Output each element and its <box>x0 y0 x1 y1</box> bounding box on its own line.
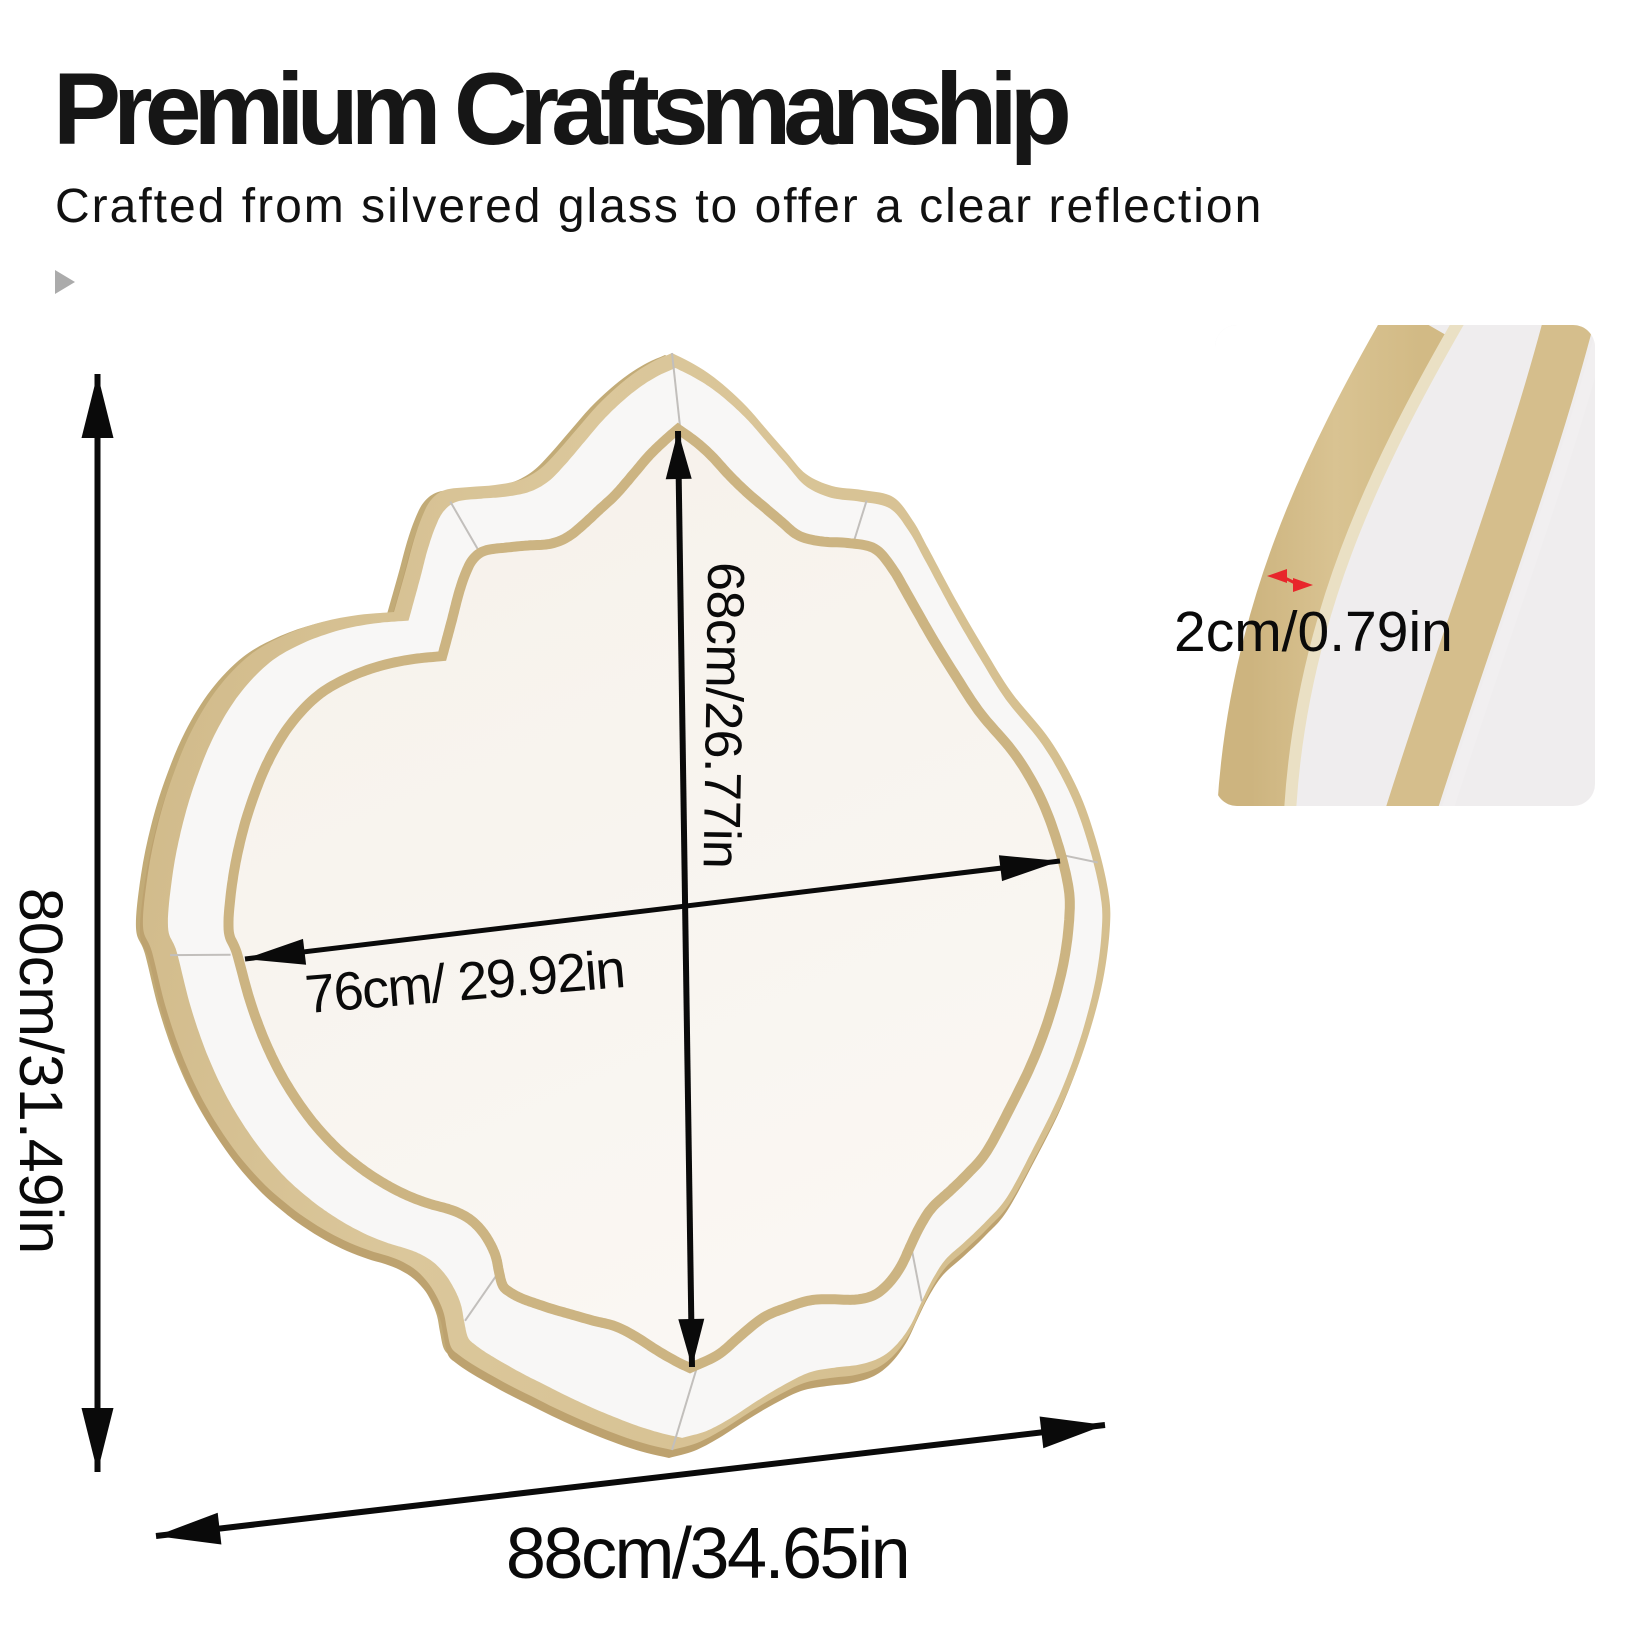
svg-text:88cm/34.65in: 88cm/34.65in <box>506 1514 908 1594</box>
svg-text:Premium Craftsmanship: Premium Craftsmanship <box>53 52 1069 166</box>
svg-text:80cm/31.49in: 80cm/31.49in <box>7 888 75 1254</box>
svg-text:68cm/26.77in: 68cm/26.77in <box>692 562 755 869</box>
svg-text:2cm/0.79in: 2cm/0.79in <box>1174 600 1453 664</box>
svg-text:Crafted from silvered glass to: Crafted from silvered glass to offer a c… <box>55 180 1263 233</box>
